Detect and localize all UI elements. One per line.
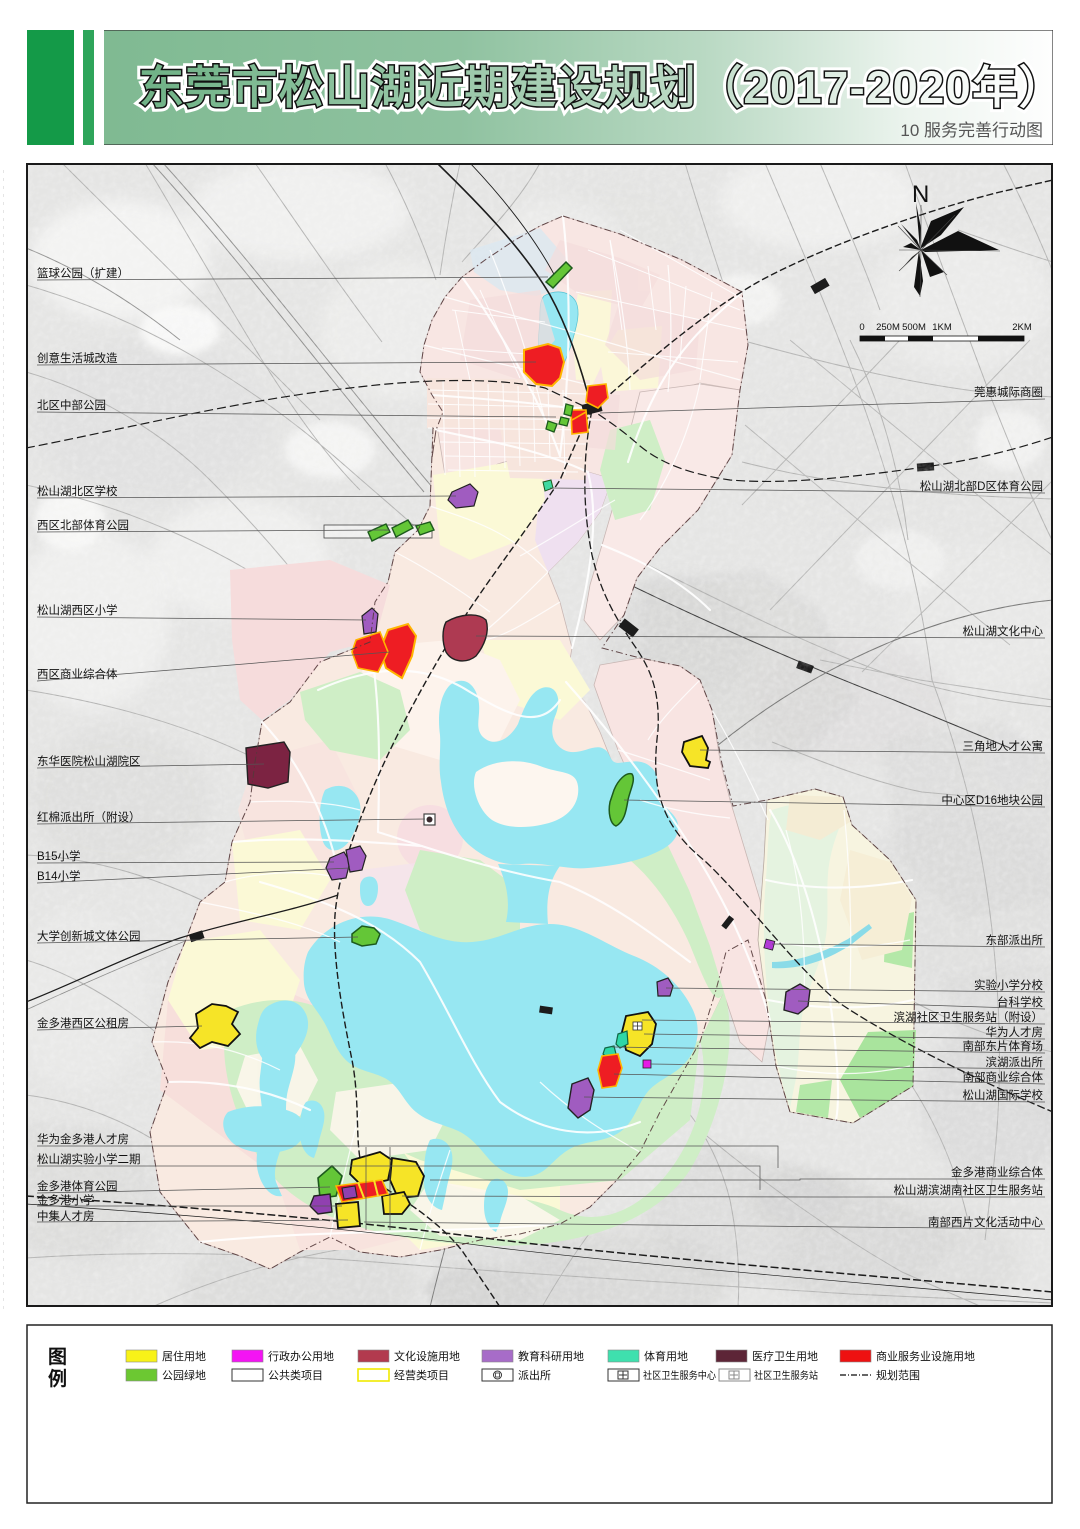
svg-text:教育科研用地: 教育科研用地	[518, 1349, 584, 1363]
svg-text:松山湖滨湖南社区卫生服务站: 松山湖滨湖南社区卫生服务站	[894, 1183, 1044, 1197]
svg-text:东华医院松山湖院区: 东华医院松山湖院区	[37, 754, 141, 768]
svg-text:派出所: 派出所	[518, 1368, 551, 1382]
svg-text:华为金多港人才房: 华为金多港人才房	[37, 1132, 129, 1146]
svg-text:南部商业综合体: 南部商业综合体	[963, 1070, 1044, 1084]
svg-text:金多港西区公租房: 金多港西区公租房	[37, 1016, 129, 1030]
svg-text:图: 图	[48, 1346, 67, 1368]
svg-text:松山湖文化中心: 松山湖文化中心	[963, 624, 1044, 638]
svg-text:经营类项目: 经营类项目	[394, 1368, 449, 1382]
svg-text:实验小学分校: 实验小学分校	[974, 978, 1043, 992]
svg-text:松山湖国际学校: 松山湖国际学校	[963, 1088, 1044, 1102]
svg-text:台科学校: 台科学校	[997, 995, 1043, 1009]
svg-text:社区卫生服务中心: 社区卫生服务中心	[643, 1369, 716, 1382]
svg-text:松山湖实验小学二期: 松山湖实验小学二期	[37, 1152, 141, 1166]
svg-text:规划范围: 规划范围	[876, 1368, 920, 1382]
svg-text:东部派出所: 东部派出所	[986, 933, 1044, 947]
svg-text:文化设施用地: 文化设施用地	[394, 1349, 460, 1363]
svg-text:社区卫生服务站: 社区卫生服务站	[754, 1369, 818, 1382]
svg-text:B15小学: B15小学	[37, 849, 80, 863]
svg-text:例: 例	[48, 1367, 67, 1390]
svg-text:体育用地: 体育用地	[644, 1349, 688, 1363]
svg-text:中心区D16地块公园: 中心区D16地块公园	[941, 794, 1043, 807]
svg-text:公共类项目: 公共类项目	[268, 1368, 323, 1382]
svg-text:行政办公用地: 行政办公用地	[268, 1349, 334, 1363]
svg-text:篮球公园（扩建）: 篮球公园（扩建）	[37, 266, 129, 280]
svg-text:松山湖西区小学: 松山湖西区小学	[37, 603, 118, 617]
svg-text:松山湖北部D区体育公园: 松山湖北部D区体育公园	[920, 479, 1043, 493]
svg-text:B14小学: B14小学	[37, 869, 80, 883]
svg-text:红棉派出所（附设）: 红棉派出所（附设）	[37, 810, 141, 824]
svg-text:1KM: 1KM	[932, 322, 952, 333]
svg-text:居住用地: 居住用地	[162, 1349, 206, 1363]
svg-text:医疗卫生用地: 医疗卫生用地	[752, 1349, 818, 1363]
svg-text:北区中部公园: 北区中部公园	[37, 398, 106, 412]
svg-text:金多港商业综合体: 金多港商业综合体	[951, 1165, 1043, 1179]
svg-text:西区商业综合体: 西区商业综合体	[37, 667, 118, 681]
svg-text:创意生活城改造: 创意生活城改造	[37, 351, 118, 365]
svg-text:商业服务业设施用地: 商业服务业设施用地	[876, 1349, 975, 1363]
svg-text:金多港小学: 金多港小学	[37, 1193, 95, 1207]
svg-text:250M: 250M	[876, 322, 900, 333]
svg-text:2KM: 2KM	[1012, 322, 1032, 333]
svg-text:中集人才房: 中集人才房	[37, 1209, 95, 1223]
svg-text:南部东片体育场: 南部东片体育场	[963, 1039, 1044, 1053]
svg-text:10 服务完善行动图: 10 服务完善行动图	[900, 121, 1043, 140]
svg-text:南部西片文化活动中心: 南部西片文化活动中心	[928, 1215, 1043, 1229]
svg-text:公园绿地: 公园绿地	[162, 1368, 206, 1382]
svg-text:三角地人才公寓: 三角地人才公寓	[963, 739, 1044, 753]
svg-text:莞惠城际商圈: 莞惠城际商圈	[974, 385, 1043, 399]
svg-text:N: N	[912, 181, 929, 208]
svg-text:0: 0	[859, 322, 864, 333]
svg-text:东莞市松山湖近期建设规划（2017-2020年）: 东莞市松山湖近期建设规划（2017-2020年）	[139, 62, 1053, 113]
svg-text:金多港体育公园: 金多港体育公园	[37, 1179, 118, 1193]
svg-text:滨湖派出所: 滨湖派出所	[986, 1055, 1044, 1069]
svg-text:西区北部体育公园: 西区北部体育公园	[37, 518, 129, 532]
svg-text:滨湖社区卫生服务站（附设）: 滨湖社区卫生服务站（附设）	[894, 1010, 1044, 1024]
svg-text:华为人才房: 华为人才房	[986, 1025, 1044, 1039]
svg-text:500M: 500M	[902, 322, 926, 333]
svg-text:大学创新城文体公园: 大学创新城文体公园	[37, 929, 141, 943]
svg-text:松山湖北区学校: 松山湖北区学校	[37, 484, 118, 498]
